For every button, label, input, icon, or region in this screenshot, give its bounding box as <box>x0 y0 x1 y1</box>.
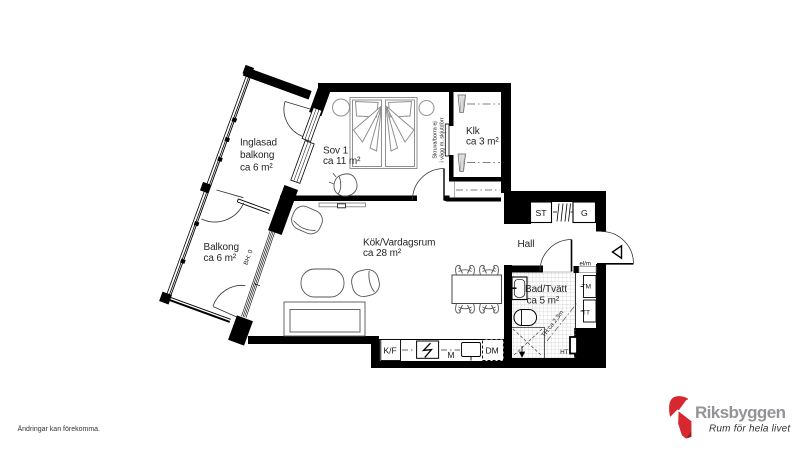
svg-text:balkong: balkong <box>240 150 274 161</box>
svg-text:ca 5 m²: ca 5 m² <box>527 296 560 307</box>
svg-text:M: M <box>448 350 455 360</box>
svg-text:K/F: K/F <box>384 346 397 356</box>
svg-text:Riksbyggen: Riksbyggen <box>695 403 786 422</box>
svg-text:ca 6 m²: ca 6 m² <box>204 253 237 264</box>
svg-text:HT: HT <box>560 349 569 356</box>
svg-text:DM: DM <box>486 346 499 356</box>
svg-text:Sov 1: Sov 1 <box>323 146 349 157</box>
svg-text:ca 11 m²: ca 11 m² <box>323 156 361 167</box>
svg-text:Ändringar kan förekomma.: Ändringar kan förekomma. <box>18 425 101 433</box>
svg-text:ST: ST <box>536 208 548 218</box>
svg-text:Balkong: Balkong <box>204 242 239 253</box>
svg-text:Rum för hela livet: Rum för hela livet <box>709 424 791 435</box>
svg-text:Klk: Klk <box>466 126 481 137</box>
svg-text:el/m: el/m <box>580 262 591 268</box>
svg-text:Skruva/borra ej: Skruva/borra ej <box>433 121 439 158</box>
svg-text:i vägg m. skjutdörr: i vägg m. skjutdörr <box>440 117 446 162</box>
svg-text:ca 3 m²: ca 3 m² <box>466 137 499 148</box>
svg-text:Inglasad: Inglasad <box>240 138 277 149</box>
svg-text:Kök/Vardagsrum: Kök/Vardagsrum <box>363 238 435 249</box>
svg-text:Bad/Tvätt: Bad/Tvätt <box>525 284 567 295</box>
svg-text:G: G <box>581 208 588 218</box>
svg-text:ca 6 m²: ca 6 m² <box>240 163 273 174</box>
svg-text:TT: TT <box>582 310 590 317</box>
svg-text:ca 28 m²: ca 28 m² <box>363 248 402 259</box>
svg-text:TM: TM <box>582 284 592 291</box>
svg-text:Hall: Hall <box>518 239 535 250</box>
